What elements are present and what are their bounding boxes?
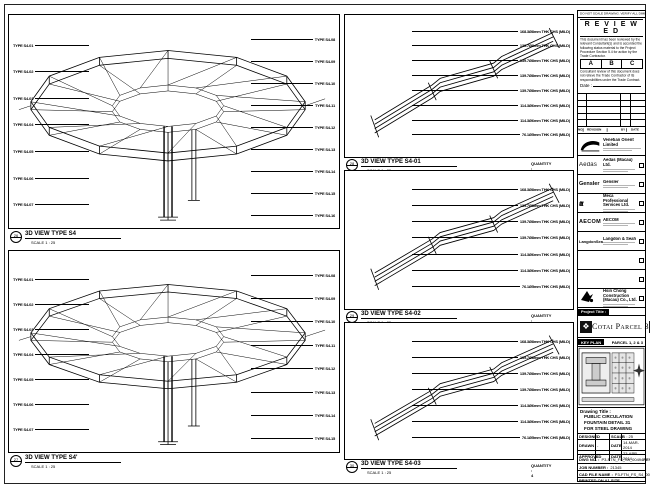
- member-annotation: 114.3Ø6mm THK CHS (MILD): [410, 401, 570, 409]
- drawing-title-box: Drawing Title : PUBLIC CIRCULATION FOUNT…: [578, 408, 645, 434]
- member-annotation: TYPE S4-11: [249, 101, 335, 109]
- member-annotation: TYPE S4-05: [13, 375, 91, 383]
- leader-line: [412, 189, 518, 190]
- leader-line: [412, 45, 518, 46]
- member-annotation: TYPE S4-06: [13, 400, 91, 408]
- member-annotation: TYPE S4-12: [249, 365, 335, 373]
- consultant-row-aedas: Aedas Aedas (Macau) Ltd.: [578, 156, 645, 175]
- leader-line: [412, 389, 518, 390]
- view-scale: SCALE 1 : 25: [31, 464, 121, 469]
- leader-line: [412, 341, 518, 342]
- hsin-chong-logo-icon: [579, 290, 603, 306]
- revision-row: [578, 120, 645, 127]
- member-annotation: 168.3Ø8mm THK CHS (MILD): [410, 337, 570, 345]
- fleur-motif-icon: ❖: [580, 321, 592, 333]
- top-note: DO NOT SCALE DRAWING. VERIFY ALL DIMENSI…: [578, 11, 645, 18]
- revision-row: [578, 101, 645, 108]
- owner-row: Venetian Orient Limited: [578, 134, 645, 156]
- member-annotation: TYPE S4-10: [249, 79, 335, 87]
- leader-line: [251, 127, 313, 128]
- print-note-row: PRINTED ON A1 SIZE: [578, 478, 645, 483]
- member-annotation: 114.3Ø6mm THK CHS (MILD): [410, 250, 570, 258]
- status-checkbox[interactable]: [639, 201, 644, 206]
- leader-line: [35, 151, 89, 152]
- status-checkbox[interactable]: [639, 220, 644, 225]
- leader-line: [251, 39, 313, 40]
- view-panel-s4-03: 168.3Ø8mm THK CHS (MILD)139.7Ø8mm THK CH…: [344, 322, 574, 460]
- member-annotation: 114.3Ø6mm THK CHS (MILD): [410, 267, 570, 275]
- member-annotation: TYPE S4-01: [13, 275, 91, 283]
- leader-line: [35, 124, 89, 125]
- reviewed-stamp: R E V I E W E D This document has been r…: [578, 18, 645, 94]
- leader-line: [412, 357, 518, 358]
- leader-line: [412, 405, 518, 406]
- leader-line: [35, 379, 89, 380]
- member-annotation: TYPE S4-09: [249, 294, 335, 302]
- member-annotation: TYPE S4-04: [13, 350, 91, 358]
- cad-file-row: CAD FILE NAME : P3-FTN_FS_S4_00494.DWG: [578, 471, 645, 478]
- member-annotation: 139.7Ø8mm THK CHS (MILD): [410, 72, 570, 80]
- view-panel-s4-02: 168.3Ø8mm THK CHS (MILD)139.7Ø8mm THK CH…: [344, 170, 574, 310]
- key-plan: KEY PLAN PARCEL 1, 2 & 3: [578, 338, 645, 408]
- view-scale: SCALE 1 : 25: [31, 240, 121, 245]
- leader-line: [35, 204, 89, 205]
- member-annotation: 114.3Ø6mm THK CHS (MILD): [410, 101, 570, 109]
- leader-line: [251, 105, 313, 106]
- view-title: 3D VIEW TYPE S4': [25, 455, 121, 463]
- leader-line: [412, 373, 518, 374]
- status-option-c[interactable]: C: [622, 60, 642, 68]
- revision-row: [578, 114, 645, 121]
- leader-line: [35, 178, 89, 179]
- job-number-row: JOB NUMBER : 21345: [578, 464, 645, 471]
- leader-line: [412, 421, 518, 422]
- member-annotation: TYPE S4-13: [249, 145, 335, 153]
- member-annotation: 76.1Ø5mm THK CHS (MILD): [410, 283, 570, 291]
- leader-line: [35, 404, 89, 405]
- member-annotation: 76.1Ø5mm THK CHS (MILD): [410, 433, 570, 441]
- view-panel-s4: TYPE S4-01TYPE S4-02TYPE S4-03TYPE S4-04…: [8, 14, 340, 229]
- consultant-row-empty-1: [578, 251, 645, 270]
- member-annotation: TYPE S4-16: [249, 211, 335, 219]
- member-annotation: TYPE S4-04: [13, 121, 91, 129]
- address-lines: [603, 185, 638, 188]
- view-title: 3D VIEW TYPE S4-01: [361, 159, 457, 167]
- contractor-row-hsin-chong: Hsin Chong Construction (Macau) Co., Ltd…: [578, 289, 645, 308]
- aedas-logo: Aedas: [579, 162, 603, 168]
- leader-line: [412, 105, 518, 106]
- leader-line: [251, 415, 313, 416]
- leader-line: [412, 270, 518, 271]
- leader-line: [412, 60, 518, 61]
- date-field[interactable]: Date :: [580, 83, 643, 88]
- view-label-s4-03: 30 - 3D VIEW TYPE S4-03 SCALE 1 : 25 QUA…: [346, 461, 457, 475]
- leader-line: [251, 193, 313, 194]
- status-options: A B C: [580, 59, 643, 69]
- leader-line: [251, 392, 313, 393]
- leader-line: [251, 298, 313, 299]
- leader-line: [251, 438, 313, 439]
- status-checkbox[interactable]: [639, 182, 644, 187]
- leader-line: [35, 329, 89, 330]
- address-lines: [603, 169, 638, 172]
- leader-line: [35, 71, 89, 72]
- leader-line: [35, 45, 89, 46]
- leader-line: [251, 368, 313, 369]
- member-annotation: 139.7Ø8mm THK CHS (MILD): [410, 353, 570, 361]
- member-annotation: 139.7Ø8mm THK CHS (MILD): [410, 201, 570, 209]
- leader-line: [251, 149, 313, 150]
- leader-line: [412, 221, 518, 222]
- drawing-sheet: TYPE S4-01TYPE S4-02TYPE S4-03TYPE S4-04…: [0, 0, 650, 488]
- signature-fields: DESIGNED - SCALE 1 : 25 DRAWN - DATE 14-…: [578, 434, 645, 455]
- title-block: DO NOT SCALE DRAWING. VERIFY ALL DIMENSI…: [577, 10, 646, 482]
- status-checkbox[interactable]: [639, 296, 644, 301]
- site-plan-graphic: [578, 347, 645, 406]
- status-option-a[interactable]: A: [581, 60, 602, 68]
- detail-callout: 30 -: [346, 461, 358, 473]
- owner-name: Venetian Orient Limited: [603, 138, 644, 147]
- leader-line: [412, 286, 520, 287]
- member-annotation: TYPE S4-14: [249, 167, 335, 175]
- member-annotation: TYPE S4-03: [13, 94, 91, 102]
- detail-callout: 26 -: [10, 231, 22, 243]
- leader-line: [251, 215, 313, 216]
- consultant-row-aecom: AECOM AECOM: [578, 213, 645, 232]
- project-title: Cotai Parcel 3: [592, 322, 649, 331]
- project-title-banner: ❖ Cotai Parcel 3 ❖: [578, 316, 645, 338]
- leader-line: [35, 429, 89, 430]
- left-annotations: TYPE S4-01TYPE S4-02TYPE S4-03TYPE S4-04…: [13, 275, 91, 433]
- pipe-annotations: 168.3Ø8mm THK CHS (MILD)139.7Ø8mm THK CH…: [410, 185, 570, 291]
- key-plan-label: KEY PLAN: [578, 339, 604, 345]
- member-annotation: TYPE S4-02: [13, 68, 91, 76]
- leader-line: [35, 304, 89, 305]
- member-annotation: TYPE S4-09: [249, 57, 335, 65]
- member-annotation: 168.3Ø8mm THK CHS (MILD): [410, 185, 570, 193]
- status-checkbox[interactable]: [639, 258, 644, 263]
- address-lines: [603, 223, 638, 226]
- member-annotation: 139.7Ø8mm THK CHS (MILD): [410, 42, 570, 50]
- drawing-title-line: FOR STEEL DRAWING: [584, 426, 643, 432]
- leader-line: [251, 345, 313, 346]
- status-checkbox[interactable]: [639, 239, 644, 244]
- address-lines: [603, 242, 638, 245]
- reviewed-title: R E V I E W E D: [580, 19, 643, 37]
- member-annotation: 139.7Ø8mm THK CHS (MILD): [410, 385, 570, 393]
- reviewed-body: This document has been reviewed by the r…: [580, 38, 642, 59]
- cad-file-name: P3-FTN_FS_S4_00494.DWG: [615, 472, 650, 477]
- leader-line: [412, 120, 518, 121]
- consultant-row-langdon: LangdonSeah Langdon & Seah: [578, 232, 645, 251]
- owner-address: [603, 148, 644, 151]
- venetian-logo-icon: [579, 138, 601, 152]
- member-annotation: TYPE S4-14: [249, 412, 335, 420]
- view-title: 3D VIEW TYPE S4: [25, 231, 121, 239]
- gensler-logo: Gensler: [579, 181, 603, 187]
- leader-line: [35, 354, 89, 355]
- revision-table: NO. REVISION BY DATE: [578, 94, 645, 134]
- detail-callout: 27 -: [10, 455, 22, 467]
- member-annotation: 114.3Ø6mm THK CHS (MILD): [410, 116, 570, 124]
- member-annotation: TYPE S4-12: [249, 123, 335, 131]
- leader-line: [412, 31, 518, 32]
- revision-row: [578, 107, 645, 114]
- consultant-row-empty-2: [578, 270, 645, 289]
- project-title-strip: Project Title :: [578, 308, 645, 316]
- status-checkbox[interactable]: [639, 277, 644, 282]
- member-annotation: TYPE S4-15: [249, 435, 335, 443]
- view-panel-s4-01: 168.3Ø8mm THK CHS (MILD)139.7Ø8mm THK CH…: [344, 14, 574, 158]
- leader-line: [251, 83, 313, 84]
- leader-line: [35, 98, 89, 99]
- member-annotation: 139.7Ø8mm THK CHS (MILD): [410, 218, 570, 226]
- view-title: 3D VIEW TYPE S4-03: [361, 461, 457, 469]
- member-annotation: TYPE S4-03: [13, 325, 91, 333]
- leader-line: [412, 134, 520, 135]
- member-annotation: TYPE S4-06: [13, 174, 91, 182]
- member-annotation: 139.7Ø8mm THK CHS (MILD): [410, 369, 570, 377]
- reviewed-note: Consultant review of this document does …: [580, 70, 642, 82]
- view-label-s4: 26 - 3D VIEW TYPE S4 SCALE 1 : 25: [10, 231, 121, 245]
- parcel-label: PARCEL 1, 2 & 3: [612, 340, 643, 345]
- member-annotation: TYPE S4-07: [13, 201, 91, 209]
- member-annotation: 168.3Ø8mm THK CHS (MILD): [410, 27, 570, 35]
- langdon-seah-logo: LangdonSeah: [579, 239, 603, 244]
- leader-line: [412, 237, 518, 238]
- leader-line: [412, 75, 518, 76]
- job-number: 21345: [610, 465, 621, 470]
- member-annotation: TYPE S4-15: [249, 189, 335, 197]
- pipe-annotations: 168.3Ø8mm THK CHS (MILD)139.7Ø8mm THK CH…: [410, 27, 570, 139]
- pipe-annotations: 168.3Ø8mm THK CHS (MILD)139.7Ø8mm THK CH…: [410, 337, 570, 441]
- consultant-row-gensler: Gensler Gensler: [578, 175, 645, 194]
- left-annotations: TYPE S4-01TYPE S4-02TYPE S4-03TYPE S4-04…: [13, 41, 91, 209]
- address-lines: [603, 209, 638, 212]
- member-annotation: 139.7Ø8mm THK CHS (MILD): [410, 86, 570, 94]
- member-annotation: 139.7Ø8mm THK CHS (MILD): [410, 234, 570, 242]
- leader-line: [412, 437, 520, 438]
- consultant-row-meca: ttt Meca Professional Services Ltd.: [578, 194, 645, 213]
- member-annotation: TYPE S4-02: [13, 300, 91, 308]
- view-scale: SCALE 1 : 25: [367, 470, 457, 475]
- revision-row: [578, 94, 645, 101]
- leader-line: [412, 90, 518, 91]
- member-annotation: 76.1Ø5mm THK CHS (MILD): [410, 131, 570, 139]
- revision-header-row: NO. REVISION BY DATE: [578, 127, 645, 133]
- member-annotation: TYPE S4-08: [249, 271, 335, 279]
- aecom-logo: AECOM: [579, 219, 603, 225]
- leader-line: [412, 205, 518, 206]
- view-title: 3D VIEW TYPE S4-02: [361, 311, 457, 319]
- member-annotation: TYPE S4-05: [13, 148, 91, 156]
- leader-line: [251, 171, 313, 172]
- right-annotations: TYPE S4-08TYPE S4-09TYPE S4-10TYPE S4-11…: [249, 35, 335, 219]
- member-annotation: TYPE S4-01: [13, 41, 91, 49]
- view-label-s4-prime: 27 - 3D VIEW TYPE S4' SCALE 1 : 25: [10, 455, 121, 469]
- member-annotation: TYPE S4-07: [13, 425, 91, 433]
- status-checkbox[interactable]: [639, 163, 644, 168]
- right-annotations: TYPE S4-08TYPE S4-09TYPE S4-10TYPE S4-11…: [249, 271, 335, 443]
- leader-line: [412, 254, 518, 255]
- dwg-number: P3-FTN_FS_S4_00494: [601, 457, 643, 462]
- view-panel-s4-prime: TYPE S4-01TYPE S4-02TYPE S4-03TYPE S4-04…: [8, 250, 340, 453]
- leader-line: [35, 279, 89, 280]
- leader-line: [251, 321, 313, 322]
- leader-line: [251, 275, 313, 276]
- status-option-b[interactable]: B: [602, 60, 623, 68]
- member-annotation: 139.7Ø8mm THK CHS (MILD): [410, 57, 570, 65]
- field-row: DRAWN - DATE 14-MAR-2014: [578, 440, 645, 451]
- member-annotation: TYPE S4-10: [249, 318, 335, 326]
- meca-logo: ttt: [579, 199, 603, 208]
- member-annotation: TYPE S4-11: [249, 341, 335, 349]
- leader-line: [251, 61, 313, 62]
- member-annotation: TYPE S4-08: [249, 35, 335, 43]
- member-annotation: TYPE S4-13: [249, 388, 335, 396]
- dwg-number-row: DWG NO. : P3-FTN_FS_S4_00494 REV. :A: [578, 455, 645, 464]
- member-annotation: 114.3Ø6mm THK CHS (MILD): [410, 417, 570, 425]
- address-lines: [603, 304, 638, 307]
